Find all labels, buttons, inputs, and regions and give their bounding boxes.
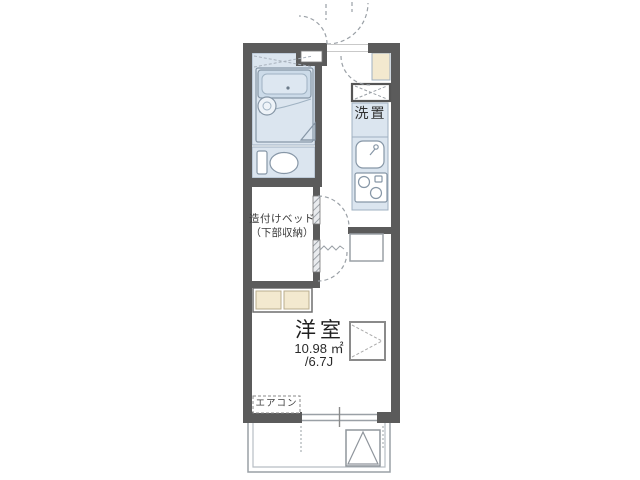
washer-space-label: 洗置: [352, 106, 389, 121]
wall-under-toilet: [252, 178, 322, 187]
corridor-door-arc: [318, 196, 349, 227]
wall-bottom-left: [243, 412, 302, 423]
wall-bed-right-a: [313, 187, 320, 196]
evacuation-hatch: [346, 430, 380, 466]
entrance-step: [301, 51, 322, 62]
balcony: [248, 423, 390, 472]
toilet: [257, 151, 298, 174]
toilet-bowl-icon: [270, 153, 298, 174]
storage-fills: [372, 53, 390, 80]
toilet-tank-icon: [257, 151, 267, 174]
shoe-cabinet: [372, 53, 390, 80]
wall-bath-right: [315, 53, 322, 187]
bathtub-drain-icon: [286, 86, 289, 89]
floorplan-drawing: [0, 0, 640, 480]
built-in-bed-sublabel: （下部収納）: [245, 228, 319, 240]
washer-pan: [352, 84, 390, 101]
floorplan-image: 洗置 造付けベッド （下部収納） 洋室 10.98 ㎡ /6.7J エアコン: [0, 0, 640, 480]
side-window: [350, 322, 385, 360]
wall-right: [391, 43, 400, 423]
wall-under-bed: [250, 281, 315, 288]
bed-step-left: [256, 291, 281, 309]
bed-steps: [253, 288, 312, 312]
entrance-door-arc-2: [299, 16, 327, 44]
bed-step-right: [284, 291, 309, 309]
entrance-threshold: [327, 45, 368, 52]
wall-kitchen-bottom: [348, 227, 391, 234]
sliding-door-lower: [313, 240, 320, 272]
room-door-arc: [318, 252, 347, 281]
built-in-bed-label: 造付けベッド: [245, 214, 319, 226]
room-door-squiggle: [320, 246, 344, 250]
hall-closet-arc: [341, 56, 370, 85]
side-window-outline: [350, 322, 385, 360]
balcony-window: [302, 407, 377, 427]
main-room-label: 洋室: [292, 319, 348, 342]
main-room-area-tatami: /6.7J: [288, 355, 350, 369]
bathtub-inner: [262, 74, 307, 94]
refrigerator-space: [350, 234, 383, 261]
wall-bottom-right: [377, 412, 400, 423]
aircon-label: エアコン: [253, 399, 300, 409]
bath-sink-icon: [258, 97, 276, 115]
entrance-door-arc: [327, 3, 368, 44]
